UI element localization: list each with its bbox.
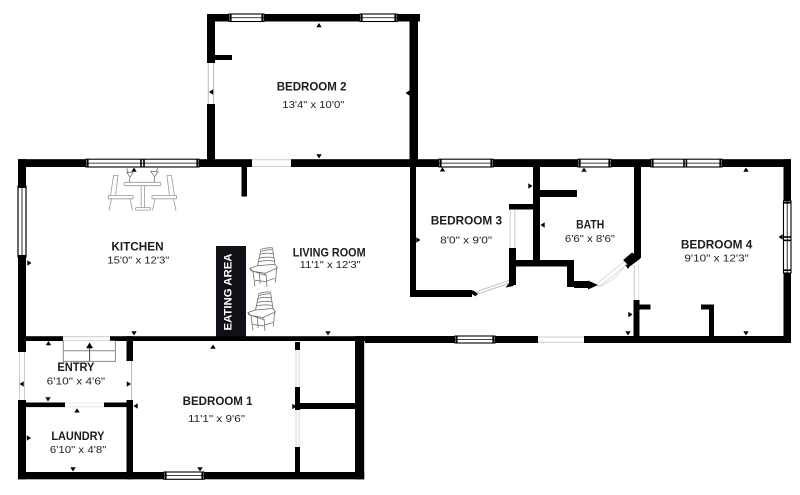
svg-text:EATING AREA: EATING AREA [223,253,235,330]
svg-text:6'10" x 4'8": 6'10" x 4'8" [50,445,107,456]
svg-text:11'1" x 9'6": 11'1" x 9'6" [188,414,245,425]
svg-text:BEDROOM 4: BEDROOM 4 [681,238,753,252]
svg-text:6'6" x 8'6": 6'6" x 8'6" [565,234,615,245]
svg-text:9'10" x 12'3": 9'10" x 12'3" [684,254,749,265]
svg-text:LIVING ROOM: LIVING ROOM [293,245,366,259]
svg-text:8'0" x 9'0": 8'0" x 9'0" [440,235,492,246]
svg-text:ENTRY: ENTRY [57,360,94,374]
svg-text:BATH: BATH [576,218,604,232]
svg-text:BEDROOM 1: BEDROOM 1 [183,394,253,408]
svg-text:KITCHEN: KITCHEN [111,239,163,253]
svg-text:BEDROOM 2: BEDROOM 2 [277,80,347,94]
svg-text:6'10" x 4'6": 6'10" x 4'6" [47,376,106,387]
svg-text:11'1" x 12'3": 11'1" x 12'3" [300,260,361,271]
svg-text:13'4" x 10'0": 13'4" x 10'0" [282,100,344,111]
svg-text:LAUNDRY: LAUNDRY [51,429,104,443]
svg-text:15'0" x 12'3": 15'0" x 12'3" [107,256,169,267]
svg-text:BEDROOM 3: BEDROOM 3 [431,213,503,227]
